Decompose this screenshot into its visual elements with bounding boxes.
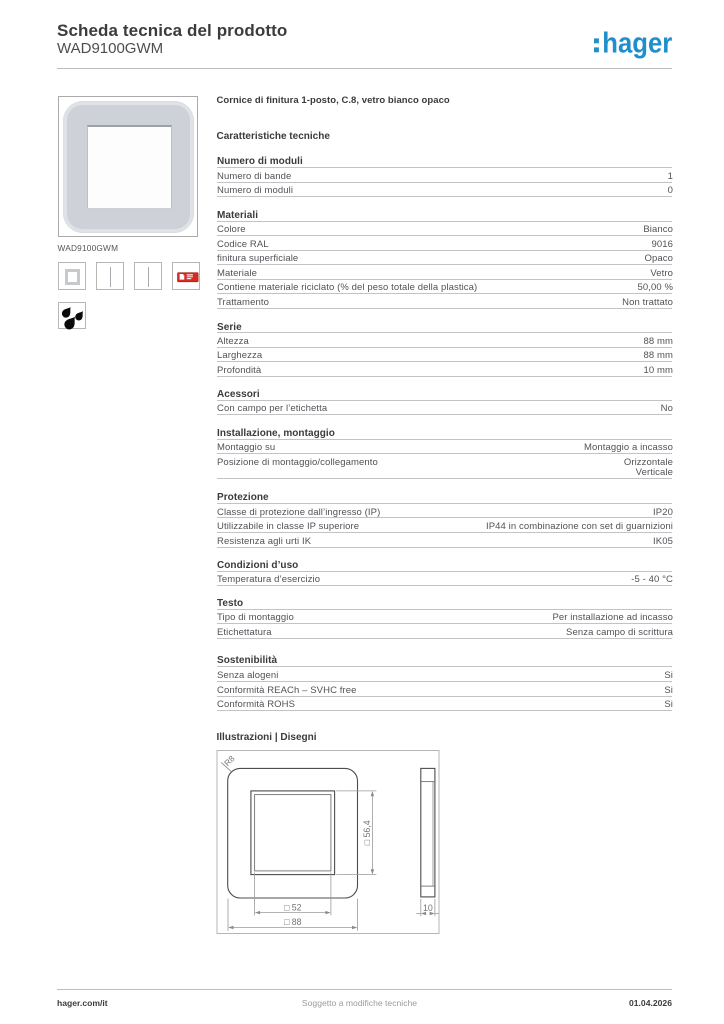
svg-text:□ 88: □ 88 <box>284 917 302 927</box>
svg-text:□ 56,4: □ 56,4 <box>362 820 372 845</box>
svg-text:R8: R8 <box>222 753 237 768</box>
svg-text:10: 10 <box>423 903 433 913</box>
svg-text:□ 52: □ 52 <box>284 902 302 912</box>
